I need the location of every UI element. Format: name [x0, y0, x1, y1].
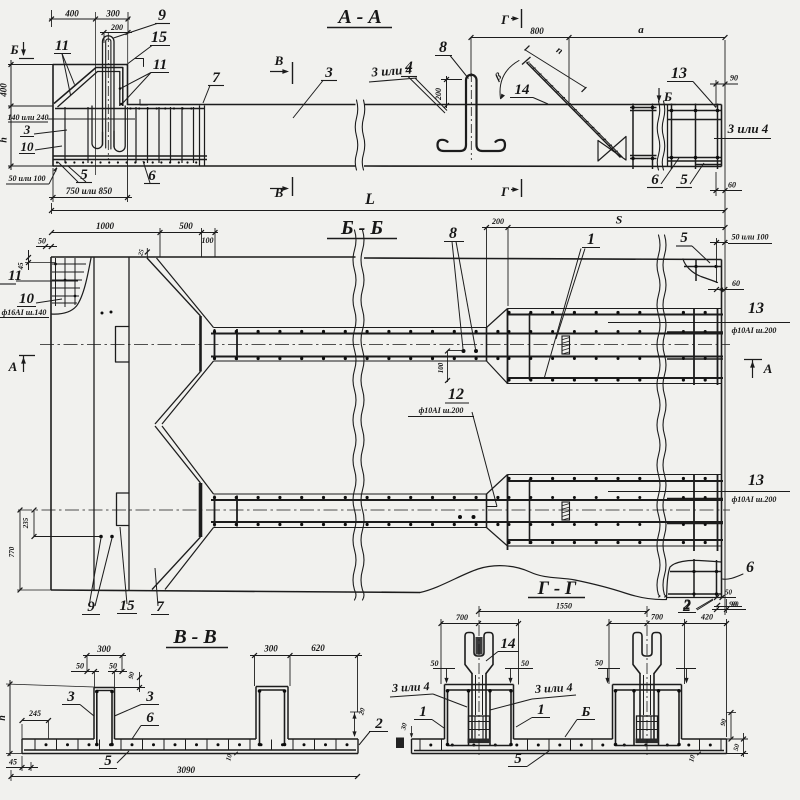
svg-text:50: 50 [595, 659, 603, 668]
svg-text:5: 5 [104, 753, 112, 769]
svg-text:L: L [364, 191, 375, 208]
svg-text:3: 3 [23, 122, 31, 137]
svg-text:1: 1 [537, 702, 545, 718]
svg-text:90: 90 [730, 74, 738, 83]
svg-text:6: 6 [146, 710, 154, 726]
svg-text:3 или 4: 3 или 4 [727, 121, 769, 136]
svg-text:А: А [763, 361, 773, 376]
svg-text:750 или 850: 750 или 850 [66, 186, 113, 196]
svg-text:Г - Г: Г - Г [537, 578, 577, 599]
svg-text:3 или 4: 3 или 4 [534, 680, 573, 696]
svg-text:200: 200 [110, 23, 123, 32]
svg-text:400: 400 [0, 83, 9, 98]
svg-text:10: 10 [19, 291, 35, 307]
svg-text:1: 1 [419, 704, 427, 720]
svg-text:50: 50 [38, 237, 46, 246]
svg-text:3: 3 [66, 689, 75, 705]
svg-text:ф10АI ш.200: ф10АI ш.200 [732, 326, 777, 335]
svg-text:А - А: А - А [336, 6, 381, 28]
svg-text:ф16АI ш.140: ф16АI ш.140 [2, 308, 47, 317]
svg-text:14: 14 [515, 82, 531, 98]
svg-text:140 или 240: 140 или 240 [7, 113, 48, 122]
svg-text:50 или 100: 50 или 100 [8, 174, 45, 183]
svg-text:9: 9 [158, 7, 166, 24]
svg-text:800: 800 [530, 26, 544, 36]
svg-text:90: 90 [729, 600, 737, 609]
svg-text:50: 50 [76, 662, 84, 671]
svg-text:В: В [274, 185, 284, 200]
svg-text:200: 200 [434, 88, 443, 101]
svg-text:50: 50 [431, 659, 439, 668]
svg-text:100: 100 [437, 362, 445, 373]
svg-text:S: S [616, 213, 623, 227]
svg-text:400: 400 [64, 9, 79, 19]
svg-text:3: 3 [145, 689, 154, 705]
svg-text:2: 2 [682, 598, 691, 615]
svg-text:5: 5 [680, 230, 688, 246]
svg-text:300: 300 [96, 644, 111, 654]
svg-text:60: 60 [728, 181, 736, 190]
svg-text:50: 50 [109, 662, 117, 671]
svg-text:ф10АI ш.200: ф10АI ш.200 [419, 406, 464, 415]
svg-text:h: h [0, 715, 8, 721]
svg-text:700: 700 [456, 613, 468, 622]
svg-text:13: 13 [748, 300, 764, 317]
svg-text:Б: Б [663, 89, 672, 104]
svg-text:10: 10 [21, 139, 35, 154]
svg-text:8: 8 [439, 39, 447, 56]
svg-text:15: 15 [151, 29, 167, 46]
svg-text:700: 700 [651, 613, 663, 622]
svg-text:12: 12 [448, 386, 464, 403]
svg-text:500: 500 [179, 221, 193, 231]
svg-text:300: 300 [105, 9, 120, 19]
svg-text:1: 1 [587, 231, 595, 248]
svg-text:13: 13 [671, 65, 687, 82]
svg-text:1550: 1550 [556, 602, 572, 611]
svg-text:ф10АI ш.200: ф10АI ш.200 [732, 495, 777, 504]
svg-text:245: 245 [28, 709, 41, 718]
svg-text:2: 2 [374, 716, 383, 732]
svg-text:620: 620 [311, 643, 325, 653]
svg-text:5: 5 [680, 172, 688, 188]
svg-text:770: 770 [8, 546, 16, 557]
svg-text:4: 4 [404, 59, 413, 75]
svg-text:235: 235 [22, 517, 30, 529]
svg-text:h: h [0, 137, 10, 143]
svg-text:8: 8 [449, 225, 457, 242]
svg-text:Б: Б [581, 705, 591, 720]
svg-text:а: а [638, 24, 644, 36]
svg-text:В - В: В - В [172, 626, 216, 648]
svg-text:6: 6 [651, 172, 659, 188]
svg-text:5: 5 [514, 751, 522, 767]
svg-text:45: 45 [8, 758, 17, 767]
svg-text:9: 9 [87, 599, 95, 615]
svg-text:300: 300 [263, 644, 278, 654]
svg-text:Б - Б: Б - Б [340, 217, 383, 239]
svg-text:7: 7 [212, 70, 220, 86]
svg-text:А: А [8, 359, 18, 374]
svg-text:11: 11 [153, 57, 167, 73]
svg-text:Г: Г [500, 184, 509, 199]
svg-text:200: 200 [491, 217, 504, 226]
svg-text:15: 15 [120, 598, 136, 614]
svg-text:3: 3 [324, 65, 333, 81]
svg-text:6: 6 [746, 559, 754, 576]
svg-text:60: 60 [732, 279, 740, 288]
svg-text:11: 11 [55, 38, 69, 54]
svg-text:11: 11 [8, 268, 22, 284]
svg-text:14: 14 [501, 636, 517, 652]
svg-text:3090: 3090 [176, 765, 196, 775]
svg-text:1000: 1000 [96, 221, 115, 231]
svg-text:50 или 100: 50 или 100 [731, 233, 768, 242]
svg-text:В: В [274, 53, 284, 68]
svg-text:13: 13 [748, 472, 764, 489]
svg-text:Г: Г [500, 12, 509, 27]
svg-text:Б: Б [9, 42, 18, 57]
svg-text:420: 420 [700, 613, 713, 622]
svg-text:3 или 4: 3 или 4 [391, 679, 430, 695]
svg-text:50: 50 [521, 659, 529, 668]
svg-text:100: 100 [202, 236, 214, 245]
svg-text:50: 50 [725, 589, 733, 597]
